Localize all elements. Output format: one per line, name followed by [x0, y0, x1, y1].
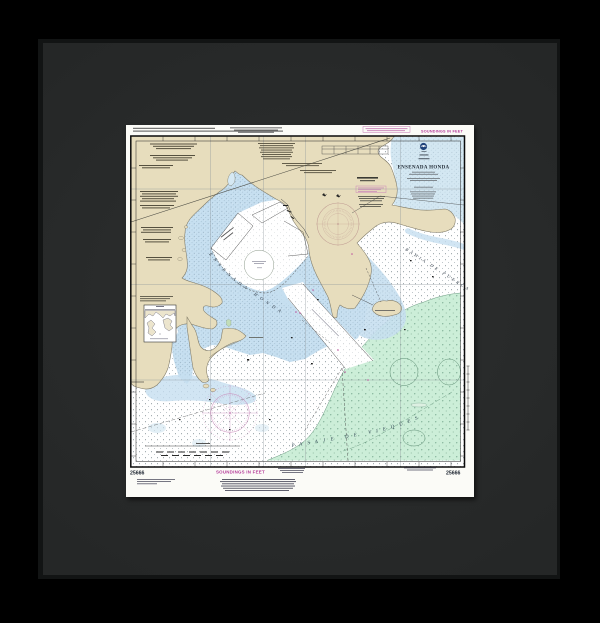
- svg-text:25666: 25666: [446, 471, 461, 477]
- svg-text:SOUNDINGS IN FEET: SOUNDINGS IN FEET: [421, 129, 463, 133]
- svg-text:SOUNDINGS IN FEET: SOUNDINGS IN FEET: [216, 470, 265, 475]
- svg-text:ENSENADA HONDA: ENSENADA HONDA: [398, 165, 450, 170]
- svg-text:25666: 25666: [130, 471, 145, 477]
